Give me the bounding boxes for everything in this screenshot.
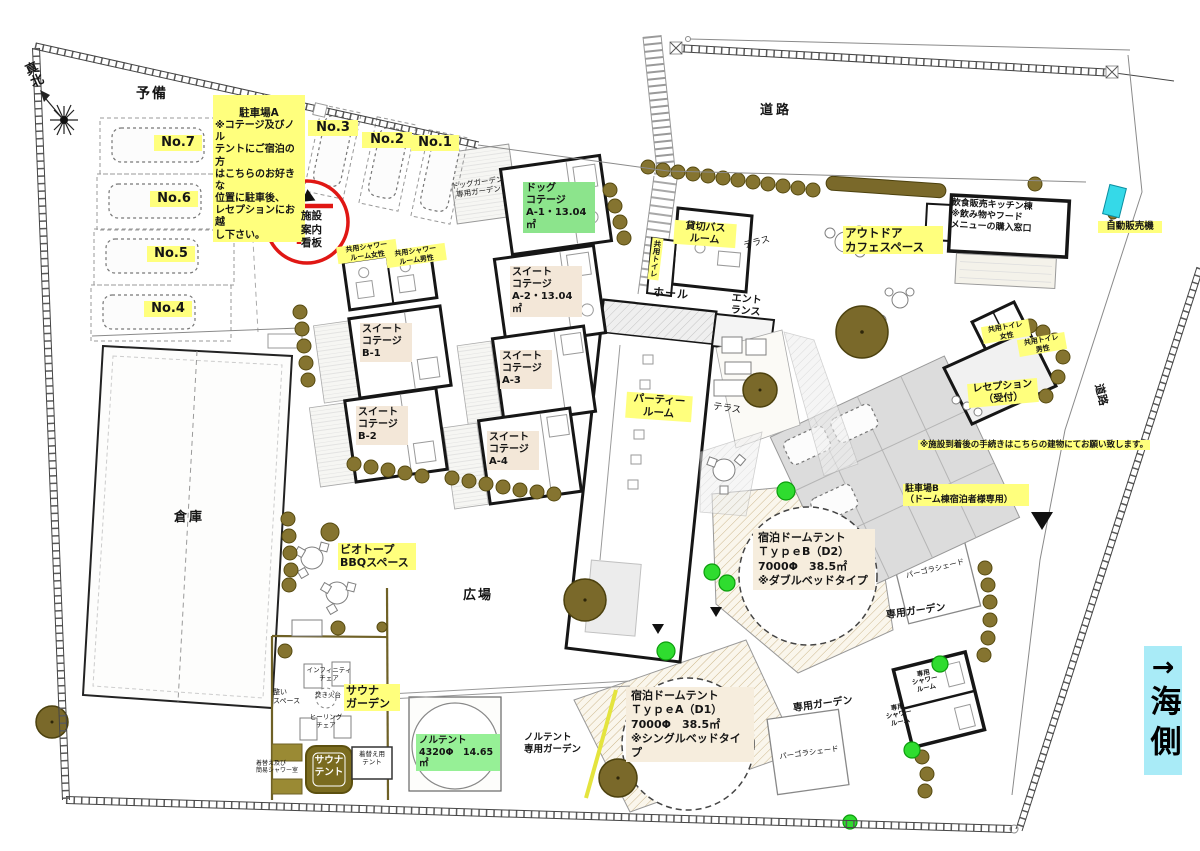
parking-space-no7: No.7: [154, 135, 202, 151]
cottage-a2-label: スイート コテージ A-2・13.04㎡: [510, 266, 582, 317]
triangle-marker-dome-a2: [710, 607, 722, 617]
parking-space-no5: No.5: [147, 246, 195, 262]
parking-space-no4: No.4: [144, 301, 192, 317]
fence-road-north: [670, 37, 1174, 82]
dome-type-b-label: 宿泊ドームテント ＴｙｐｅB（D2） 7000Φ 38.5㎡ ※ダブルベッドタイ…: [753, 529, 875, 590]
parking-space-no6: No.6: [150, 191, 198, 207]
parking-a-note: 駐車場A※コテージ及びノル テントにご宿泊の方 はこちらのお好きな 位置に駐車後…: [213, 95, 305, 242]
fence-west: [33, 48, 70, 800]
bbq-space-label: ビオトープ BBQスペース: [338, 543, 416, 570]
changing-tent-label: 着替え用 テント: [354, 751, 390, 767]
plaza-label: 広場: [452, 588, 504, 604]
reception-notice: ※施設到着後の手続きはこちらの建物にてお願い致します。: [918, 440, 1150, 450]
triangle-marker-parking-b: [1031, 512, 1053, 530]
vending-machine: [1103, 185, 1127, 218]
parking-space-no2: No.2: [362, 132, 412, 148]
cottage-a1-label: ドッグ コテージ A-1・13.04㎡: [523, 182, 595, 233]
changing-shower-label: 着替え及び 簡易シャワー室: [256, 760, 306, 775]
cottage-b2-label: スイート コテージ B-2: [356, 406, 408, 445]
hedge: [826, 176, 947, 198]
fence-south: [66, 797, 1018, 834]
facility-sign-label: 施設 案内 看板: [301, 210, 333, 251]
parking-a-note-title: 駐車場A: [215, 107, 303, 120]
warehouse-label: 倉庫: [166, 510, 212, 526]
sauna-garden-label: サウナ ガーデン: [344, 684, 400, 711]
cottage-b1-label: スイート コテージ B-1: [360, 323, 412, 362]
sea-arrow-icon: →: [1152, 654, 1175, 681]
infinity-chair-label: インフィニティ チェア: [302, 667, 356, 683]
cottage-a3-label: スイート コテージ A-3: [500, 350, 552, 389]
site-plan: 真北 予備 駐車場A※コテージ及びノル テントにご宿泊の方 はこちらのお好きな …: [0, 0, 1200, 851]
sea-side-label: 海側: [1141, 685, 1186, 765]
fire-pit-label: 焚き火台: [312, 692, 344, 700]
sauna-tent-label: サウナ テント: [308, 755, 350, 778]
healing-chair-label: ヒーリング チェア: [306, 714, 346, 730]
outdoor-cafe-label: アウトドア カフェスペース: [843, 226, 943, 254]
entrance-label: エント ランス: [721, 292, 771, 320]
parking-a-note-body: ※コテージ及びノル テントにご宿泊の方 はこちらのお好きな 位置に駐車後、 レセ…: [215, 120, 295, 241]
road-top-label: 道路: [760, 103, 792, 119]
dome-type-a-label: 宿泊ドームテント ＴｙｐｅA（D1） 7000Φ 38.5㎡ ※シングルベッドタ…: [626, 687, 754, 762]
compass-north-icon: [40, 90, 78, 135]
rest-space-label: 整い スペース: [273, 688, 309, 705]
parking-b-label: 駐車場B （ドーム棟宿泊者様専用）: [903, 484, 1029, 506]
cottage-a4-label: スイート コテージ A-4: [487, 431, 539, 470]
reserve-area-label: 予備: [136, 86, 168, 103]
site-plan-linework: [0, 0, 1200, 851]
vending-machine-label: 自動販売機: [1098, 221, 1162, 233]
sea-side-banner: → 海側: [1144, 646, 1182, 775]
private-bath-label: 貸切バス ルーム: [673, 220, 737, 249]
nortent-garden-label: ノルテント 専用ガーデン: [524, 732, 600, 755]
kitchen-building-label: 飲食販売キッチン棟 ※飲み物やフード メニューの購入窓口: [950, 198, 1066, 237]
party-room-label: パーティー ルーム: [625, 392, 693, 422]
parking-space-no1: No.1: [411, 135, 459, 151]
nortent-label: ノルテント 4320Φ 14.65㎡: [416, 734, 500, 771]
parking-space-no3: No.3: [308, 120, 358, 136]
